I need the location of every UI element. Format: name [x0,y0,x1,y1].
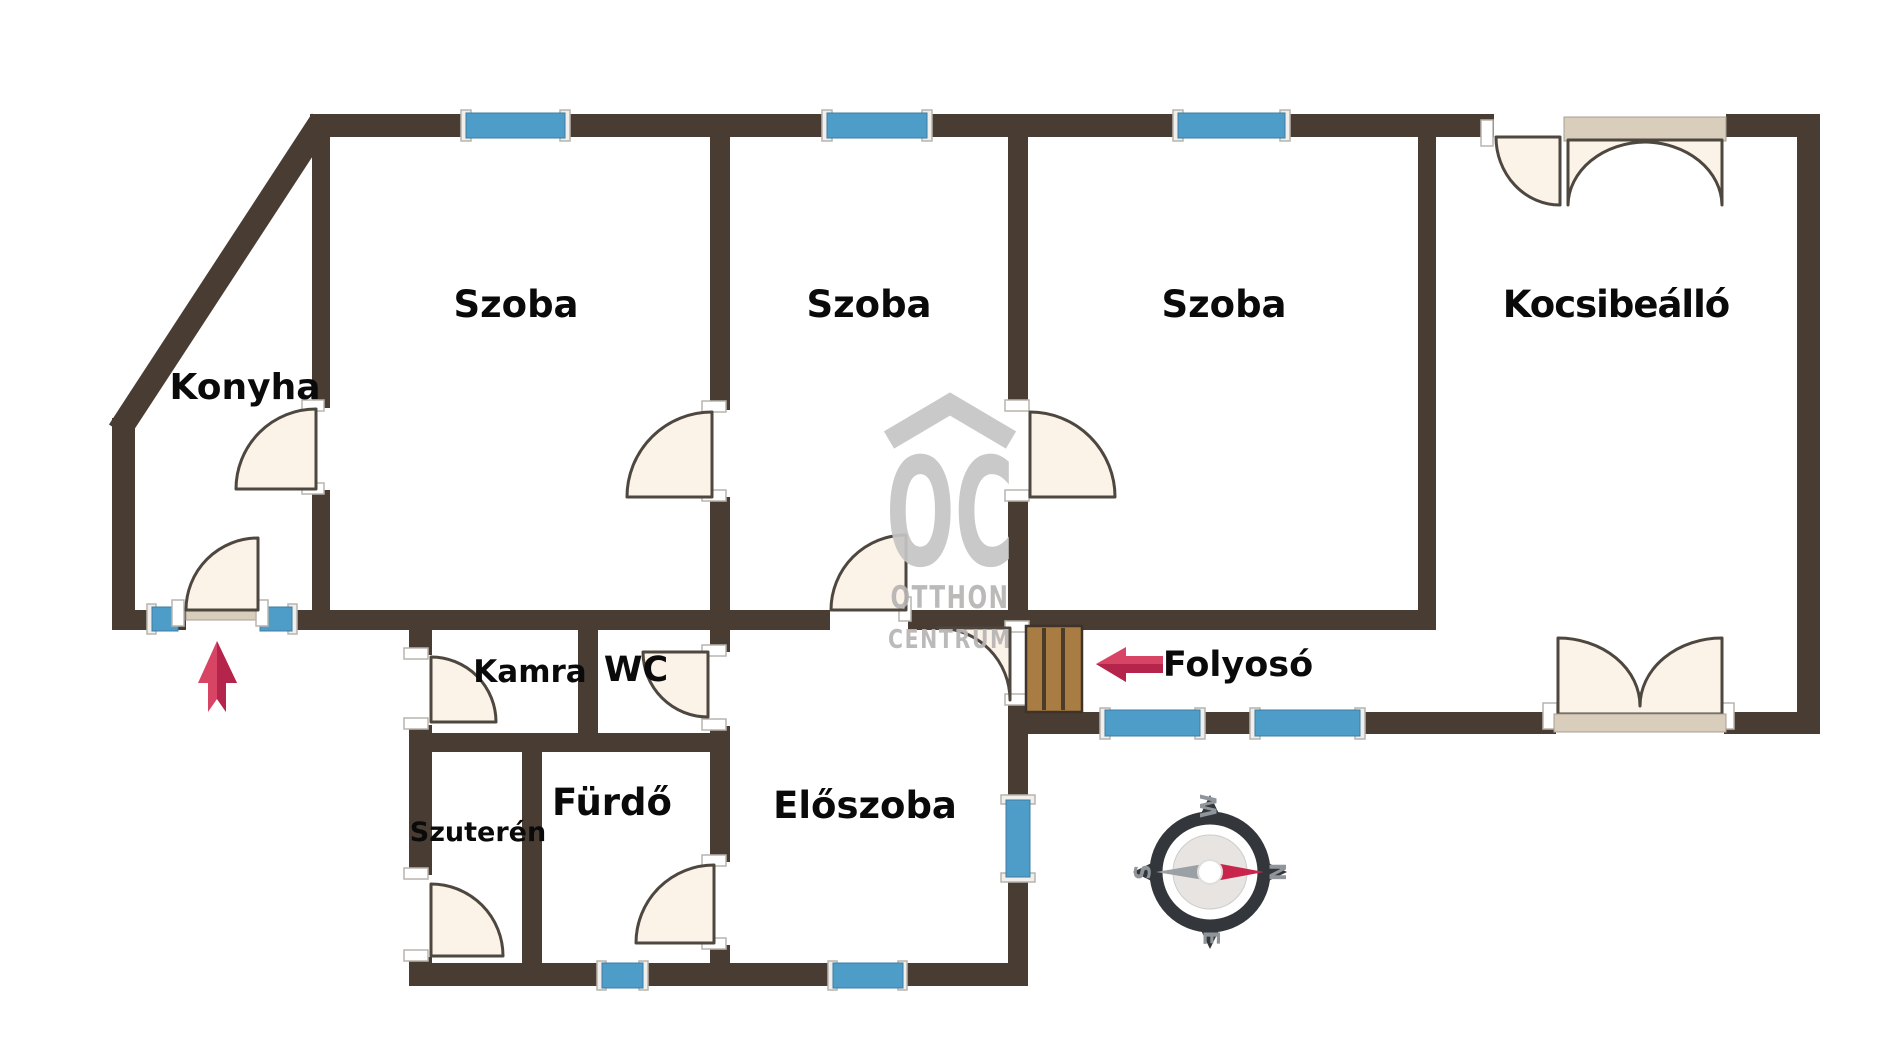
watermark-line2: CENTRUM [888,625,1012,655]
room-label-furdo: Fürdő [552,781,672,824]
double-door-folyoso-bottom [1543,638,1734,732]
wooden-steps [1026,626,1082,712]
corridor-arrow-icon [1096,647,1163,682]
window-eloszoba-bottom [828,961,907,990]
door-szoba1-szoba2 [627,412,712,497]
window-folyoso-1 [1100,708,1205,739]
room-label-kocsibeallo: Kocsibeálló [1503,283,1729,326]
room-label-folyoso: Folyosó [1163,645,1313,685]
window-eloszoba-right [1001,795,1035,882]
watermark-initials: OC [886,427,1014,601]
window-furdo-bottom [597,961,648,990]
room-label-szoba-2: Szoba [806,283,931,326]
room-label-konyha: Konyha [169,367,320,408]
door-kocsibeallo-top [1496,137,1560,205]
compass-letter-east: E [1198,930,1223,945]
window-szoba1-top [461,110,570,141]
window-szoba3-top [1173,110,1290,141]
compass-hub [1198,860,1222,884]
room-label-kamra: Kamra [473,654,586,690]
window-szoba2-top [822,110,932,141]
compass-letter-west: W [1198,794,1223,818]
floorplan-page: Konyha Szoba Szoba Szoba Kocsibeálló Kam… [0,0,1900,1060]
compass-letter-south: S [1132,864,1157,880]
door-konyha-szoba1 [236,409,316,489]
door-konyha-entrance [186,538,258,610]
room-label-eloszoba: Előszoba [773,784,957,827]
room-label-wc: WC [604,650,668,690]
room-label-szoba-1: Szoba [453,283,578,326]
compass-letter-north: N [1264,863,1289,881]
door-szoba2-szoba3 [1030,412,1115,497]
door-furdo [636,865,714,943]
room-label-szuteren: Szuterén [410,817,546,848]
door-szuteren [431,884,503,956]
watermark-line1: OTTHON [891,580,1010,616]
compass-rose: W S N E [1132,794,1289,949]
window-folyoso-2 [1250,708,1365,739]
floorplan-canvas: Konyha Szoba Szoba Szoba Kocsibeálló Kam… [0,0,1900,1060]
room-label-szoba-3: Szoba [1161,283,1286,326]
garage-door-top [1564,117,1726,205]
entrance-arrow-icon [198,641,237,712]
